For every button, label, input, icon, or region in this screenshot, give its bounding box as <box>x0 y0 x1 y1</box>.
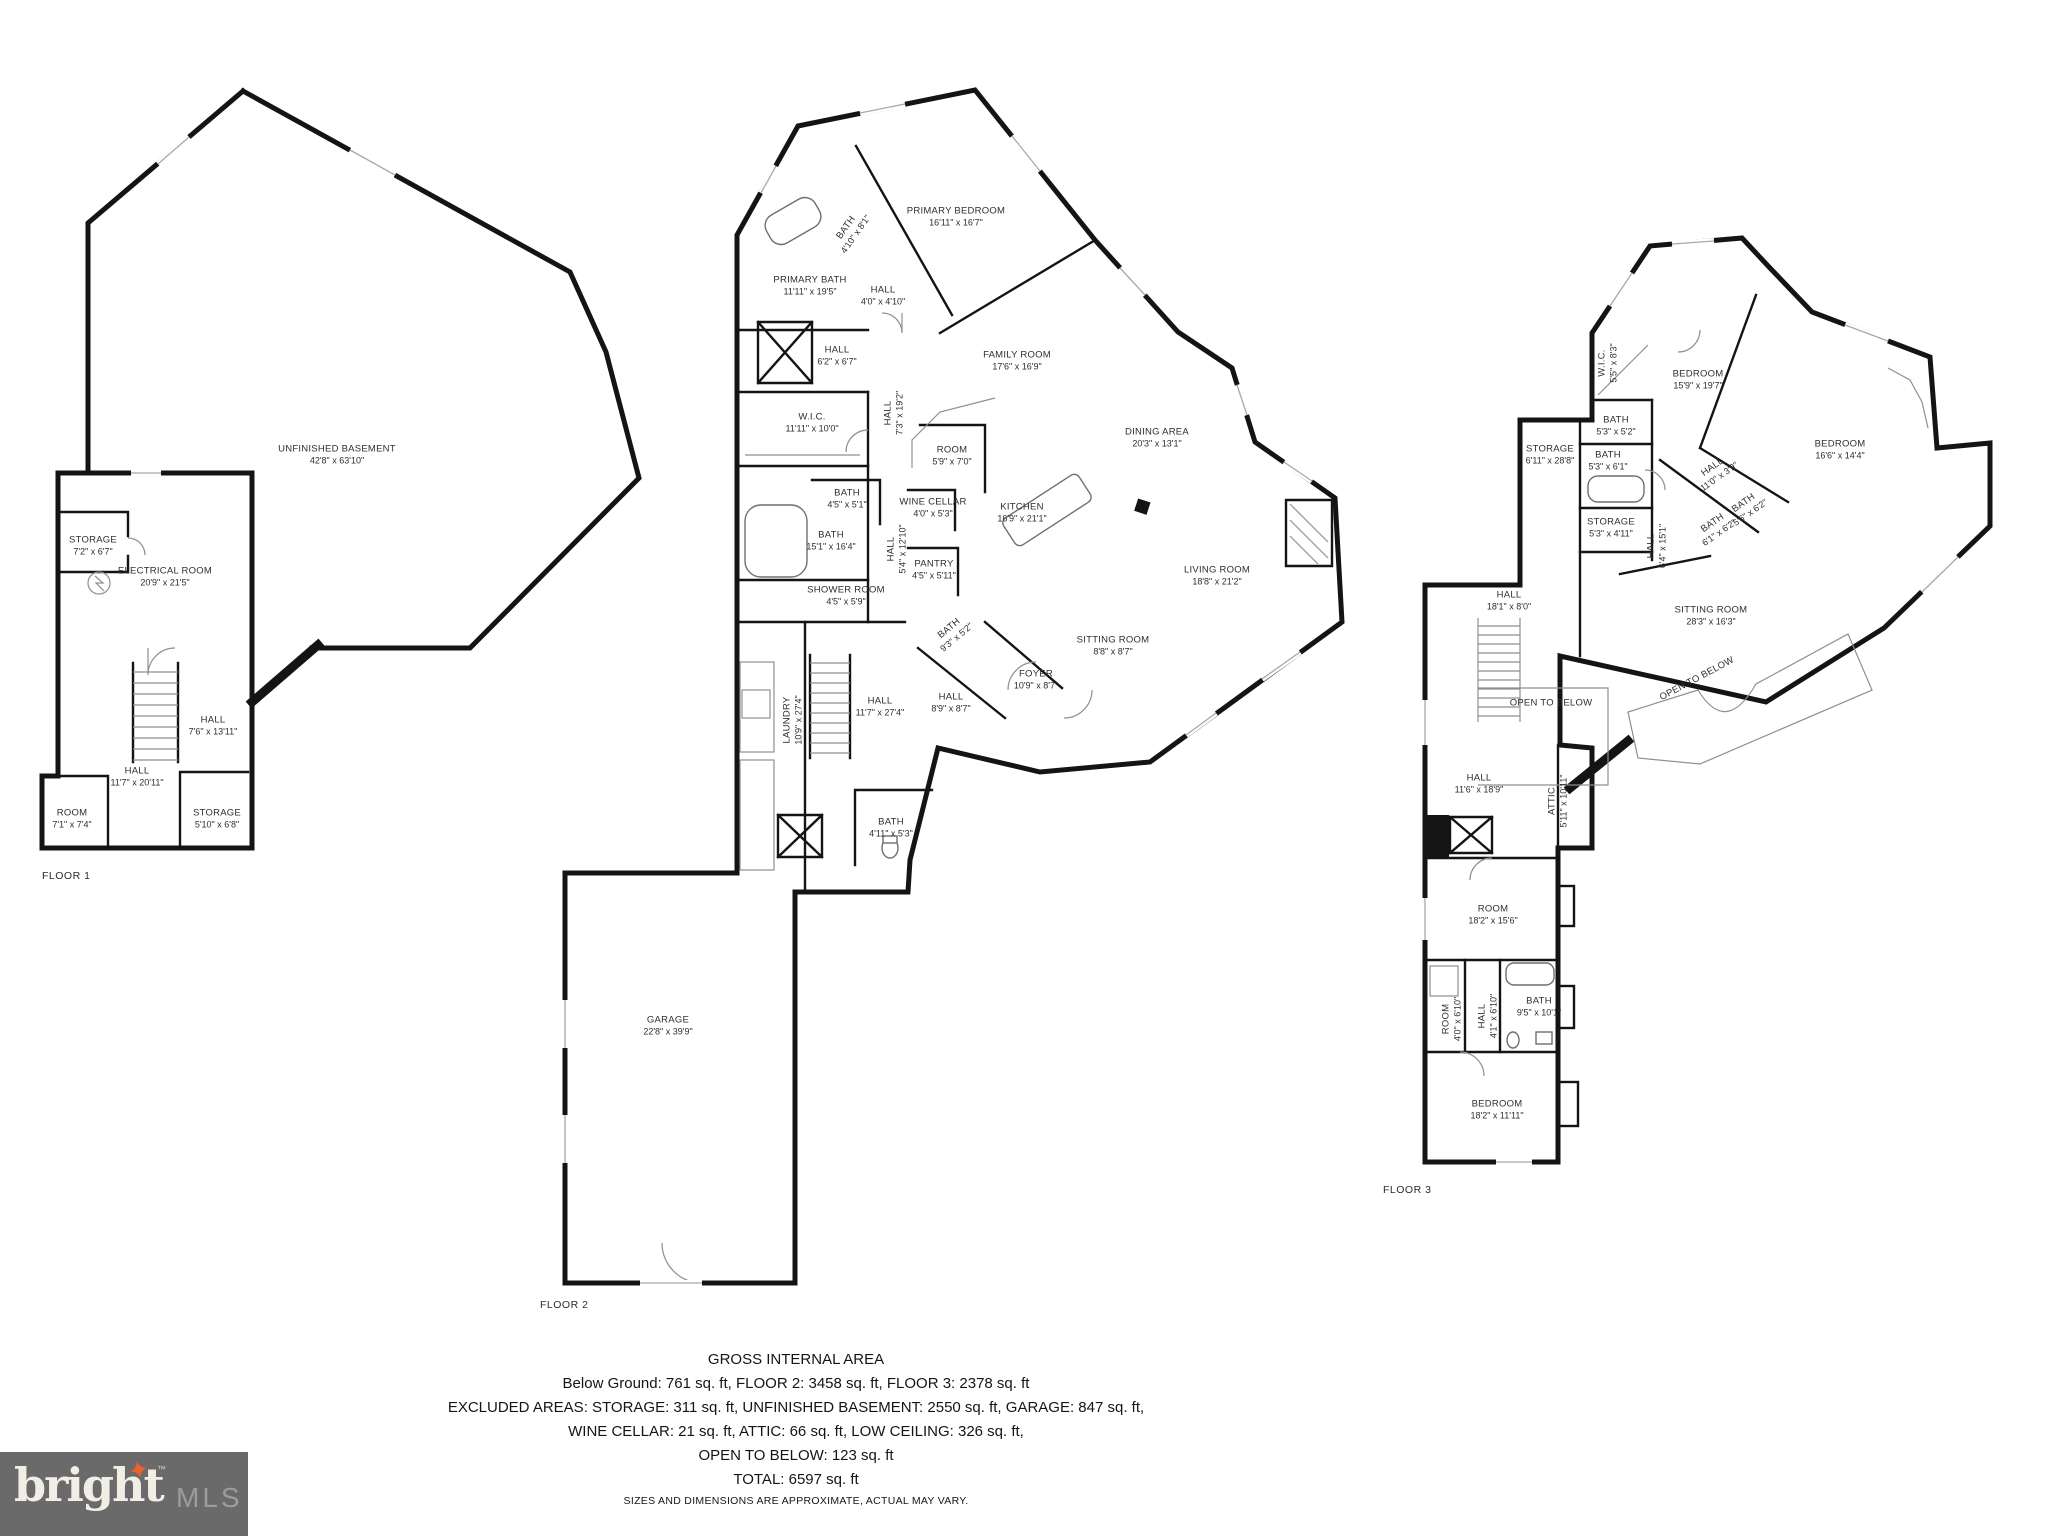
room-label: PANTRY4'5" x 5'11" <box>912 559 956 582</box>
room-label: LIVING ROOM18'8" x 21'2" <box>1184 565 1250 588</box>
room-label: HALL11'0" x 3'9" <box>1692 450 1741 494</box>
room-label: GARAGE22'8" x 39'9" <box>643 1015 692 1038</box>
room-label: STORAGE6'11" x 28'8" <box>1526 444 1575 467</box>
room-label: OPEN TO BELOW <box>1658 655 1736 704</box>
room-label: HALL11'7" x 20'11" <box>110 766 163 789</box>
room-label: HALL8'9" x 8'7" <box>931 692 970 715</box>
room-label: ROOM5'9" x 7'0" <box>932 445 971 468</box>
room-label: DINING AREA20'3" x 13'1" <box>1125 427 1189 450</box>
room-label: SITTING ROOM8'8" x 8'7" <box>1077 635 1150 658</box>
room-label: ATTIC5'11" x 10'11" <box>1547 774 1570 827</box>
room-label: HALL11'6" x 18'9" <box>1455 773 1504 796</box>
room-label: STORAGE5'10" x 6'8" <box>193 808 241 831</box>
room-label: WINE CELLAR4'0" x 5'3" <box>899 497 966 520</box>
room-label: FOYER10'9" x 8'7" <box>1014 669 1058 692</box>
room-label: W.I.C.5'5" x 8'3" <box>1597 343 1620 382</box>
bright-mls-logo: bright ✦ ™ MLS <box>0 1452 248 1536</box>
room-label: HALL6'4" x 15'1" <box>1646 524 1669 568</box>
room-label: OPEN TO BELOW <box>1510 697 1593 709</box>
room-label: HALL4'0" x 4'10" <box>861 285 905 308</box>
floor-caption: FLOOR 1 <box>42 870 90 882</box>
room-label: W.I.C.11'11" x 10'0" <box>785 412 838 435</box>
room-label: STORAGE5'3" x 4'11" <box>1587 517 1635 540</box>
room-label: FAMILY ROOM17'6" x 16'9" <box>983 350 1051 373</box>
room-label: HALL5'4" x 12'10" <box>886 524 909 573</box>
room-label: ROOM7'1" x 7'4" <box>52 808 91 831</box>
gross-internal-area-title: GROSS INTERNAL AREA <box>0 1351 1592 1368</box>
room-label: BEDROOM16'6" x 14'4" <box>1815 439 1866 462</box>
floor-caption: FLOOR 3 <box>1383 1184 1431 1196</box>
room-label: PRIMARY BATH11'11" x 19'5" <box>773 275 846 298</box>
room-label: BATH4'11" x 5'3" <box>869 817 913 840</box>
room-label: HALL4'1" x 6'10" <box>1477 994 1500 1038</box>
room-label: LAUNDRY10'9" x 27'4" <box>782 695 805 744</box>
room-label: BATH5'3" x 5'2" <box>1596 415 1635 438</box>
trademark-symbol: ™ <box>157 1464 166 1474</box>
area-line-excluded: EXCLUDED AREAS: STORAGE: 311 sq. ft, UNF… <box>0 1399 1592 1416</box>
room-labels-layer: UNFINISHED BASEMENT42'8" x 63'10"STORAGE… <box>0 0 2048 1536</box>
room-label: BEDROOM18'2" x 11'11" <box>1470 1099 1523 1122</box>
room-label: HALL7'3" x 19'2" <box>883 391 906 435</box>
room-label: KITCHEN16'9" x 21'1" <box>997 502 1046 525</box>
room-label: BATH4'5" x 5'1" <box>827 488 866 511</box>
room-label: ROOM18'2" x 15'6" <box>1468 904 1517 927</box>
room-label: HALL6'2" x 6'7" <box>817 345 856 368</box>
room-label: BATH9'3" x 5'2" <box>931 612 976 655</box>
room-label: STORAGE7'2" x 6'7" <box>69 535 117 558</box>
room-label: ELECTRICAL ROOM20'9" x 21'5" <box>118 566 212 589</box>
room-label: PRIMARY BEDROOM16'11" x 16'7" <box>907 206 1005 229</box>
room-label: BATH9'5" x 10'1" <box>1517 996 1561 1019</box>
area-line-floors: Below Ground: 761 sq. ft, FLOOR 2: 3458 … <box>0 1375 1592 1392</box>
floor-caption: FLOOR 2 <box>540 1299 588 1311</box>
room-label: HALL7'6" x 13'11" <box>189 715 238 738</box>
room-label: HALL11'7" x 27'4" <box>856 696 905 719</box>
room-label: BATH15'1" x 16'4" <box>806 530 855 553</box>
room-label: HALL18'1" x 8'0" <box>1487 590 1531 613</box>
room-label: UNFINISHED BASEMENT42'8" x 63'10" <box>278 444 396 467</box>
mls-wordmark: MLS <box>176 1482 243 1514</box>
area-line-excluded2: WINE CELLAR: 21 sq. ft, ATTIC: 66 sq. ft… <box>0 1423 1592 1440</box>
room-label: ROOM4'0" x 6'10" <box>1441 997 1464 1041</box>
room-label: BATH4'10" x 8'1" <box>829 206 873 256</box>
room-label: SHOWER ROOM4'5" x 5'9" <box>807 585 885 608</box>
room-label: SITTING ROOM28'3" x 16'3" <box>1675 605 1748 628</box>
room-label: BEDROOM15'9" x 19'7" <box>1673 369 1724 392</box>
room-label: BATH5'3" x 6'1" <box>1588 450 1627 473</box>
